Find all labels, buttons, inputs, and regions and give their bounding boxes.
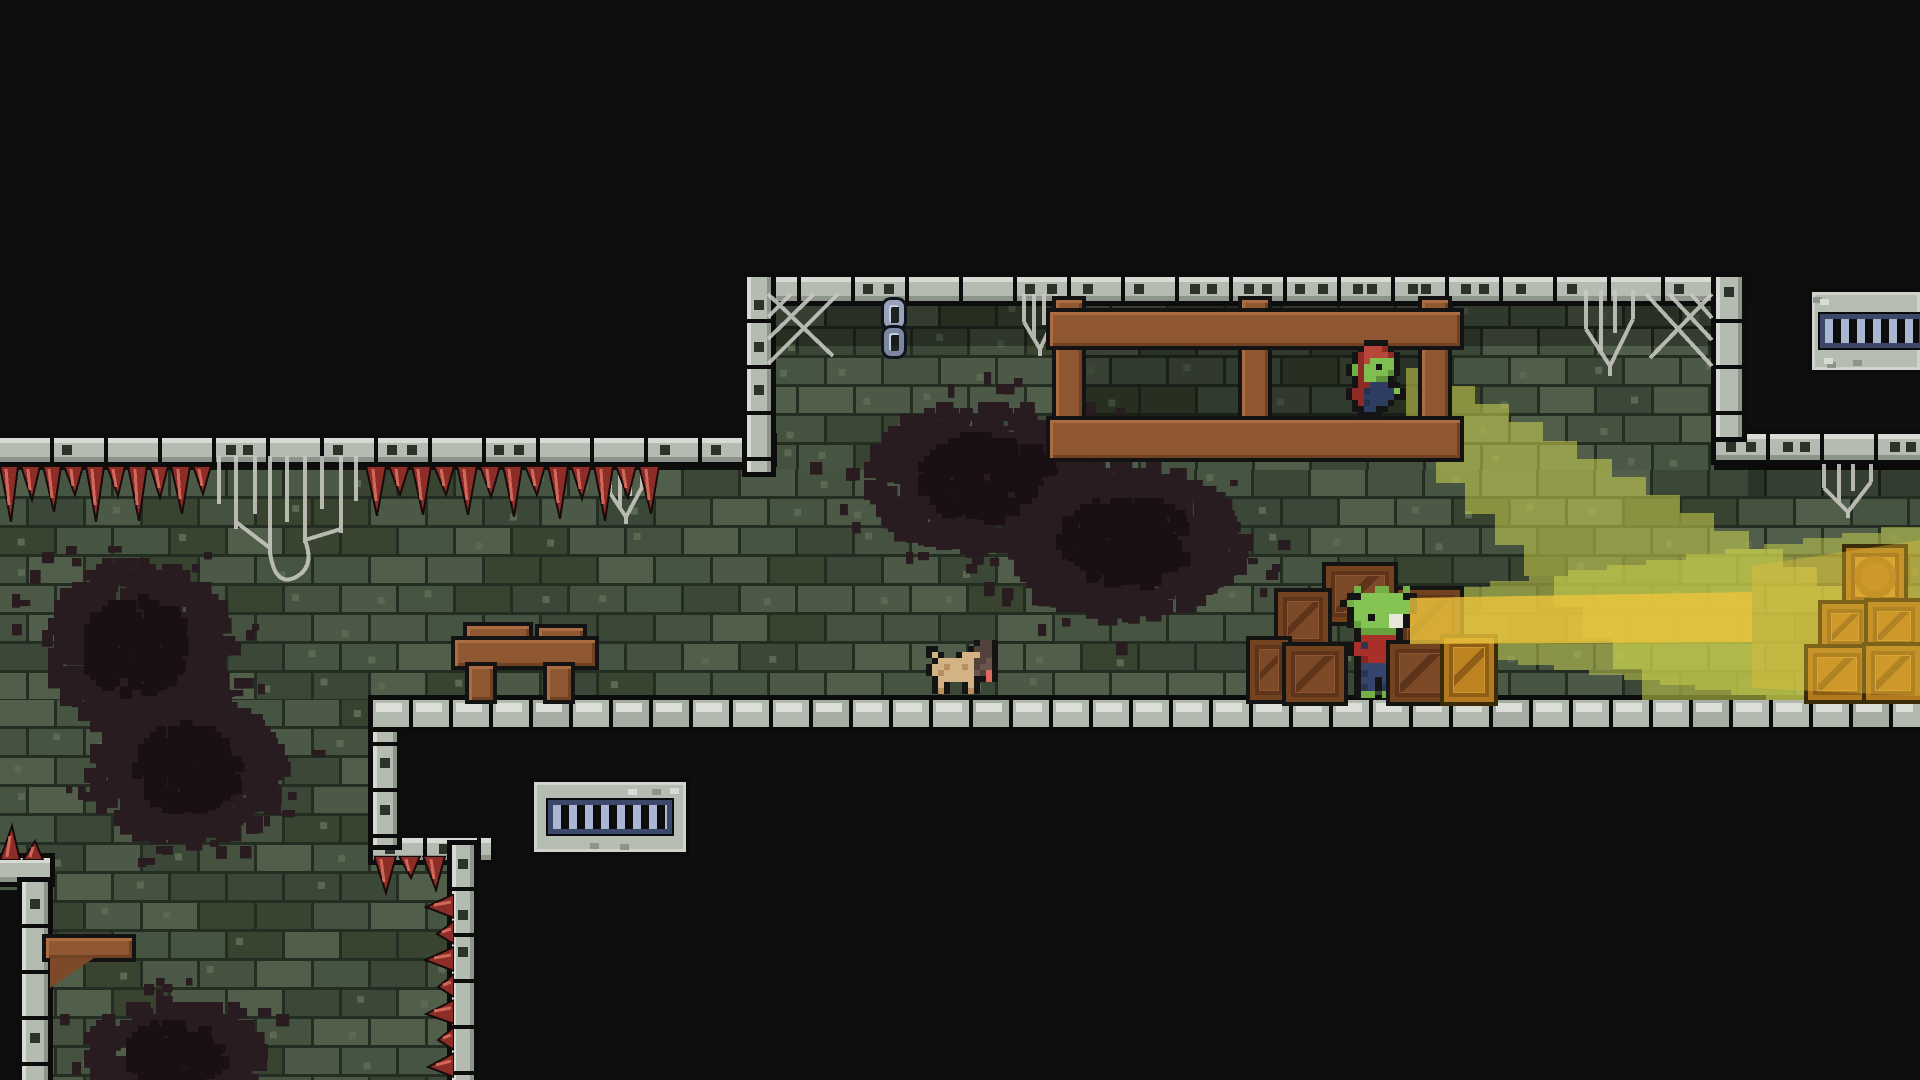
chain-link bbox=[884, 328, 904, 356]
ledge-spikes bbox=[0, 818, 46, 860]
crate-panel bbox=[1876, 656, 1910, 690]
wall-vent-upper[interactable] bbox=[1812, 292, 1920, 370]
crate-panel bbox=[1400, 654, 1440, 692]
lit-crate-3[interactable] bbox=[1808, 648, 1866, 700]
scaffold-platform bbox=[1050, 420, 1460, 458]
vent-grate bbox=[1820, 314, 1920, 348]
lit-crate-2[interactable] bbox=[1868, 602, 1920, 650]
wall-spikes bbox=[420, 894, 454, 1080]
lit-crate-4[interactable] bbox=[1866, 646, 1920, 700]
ceiling-spikes-left bbox=[0, 466, 214, 528]
stone-speck bbox=[590, 843, 599, 849]
dog-pixels bbox=[920, 640, 926, 646]
cobweb-ledge-right bbox=[1812, 464, 1886, 518]
shelf-bracket bbox=[50, 958, 94, 988]
chain-link bbox=[884, 300, 904, 328]
goblin-lantern-pixels bbox=[1340, 586, 1347, 593]
crate-panel bbox=[1818, 658, 1856, 690]
stone-speck bbox=[1824, 358, 1833, 364]
shelf-plank bbox=[46, 938, 132, 958]
wooden-table[interactable] bbox=[455, 626, 595, 700]
crate-panel bbox=[1832, 614, 1858, 640]
barrel-ring bbox=[1854, 556, 1896, 598]
vent-grate bbox=[548, 800, 672, 834]
crate-panel bbox=[1288, 602, 1318, 638]
wall-vent-lower[interactable] bbox=[534, 782, 686, 852]
crate-right-low-1[interactable] bbox=[1390, 644, 1450, 702]
lit-barrel-crate[interactable] bbox=[1846, 548, 1904, 606]
stone-speck bbox=[670, 788, 679, 794]
table-leg bbox=[469, 666, 493, 700]
crate-right-low-2[interactable] bbox=[1444, 638, 1494, 702]
stone-speck bbox=[620, 844, 629, 850]
crate-panel bbox=[1260, 650, 1278, 690]
wall-shelf[interactable] bbox=[46, 936, 132, 988]
crate-panel bbox=[1454, 648, 1484, 692]
crate-left-low-2[interactable] bbox=[1286, 646, 1344, 702]
goblin-lookout[interactable] bbox=[1340, 340, 1412, 418]
crate-panel bbox=[1878, 612, 1910, 640]
table-top bbox=[455, 640, 595, 666]
dog[interactable] bbox=[920, 640, 1004, 694]
crate-left-low-1[interactable] bbox=[1250, 640, 1288, 700]
game-viewport bbox=[0, 0, 1920, 1080]
stone-speck bbox=[1853, 360, 1862, 366]
cobweb-corner-left bbox=[766, 292, 848, 370]
crate-panel bbox=[1296, 656, 1334, 692]
goblin-lookout-pixels bbox=[1340, 340, 1346, 346]
table-leg bbox=[547, 666, 571, 700]
stone-speck bbox=[1820, 299, 1829, 305]
cobweb-corner-right bbox=[1636, 292, 1714, 372]
stone-speck bbox=[628, 789, 637, 795]
ceiling-spikes-mid bbox=[366, 466, 662, 528]
hanging-chain bbox=[884, 300, 908, 362]
stone-speck bbox=[652, 789, 661, 795]
cobweb-large-left bbox=[210, 456, 364, 588]
lit-crate-1[interactable] bbox=[1822, 604, 1868, 650]
